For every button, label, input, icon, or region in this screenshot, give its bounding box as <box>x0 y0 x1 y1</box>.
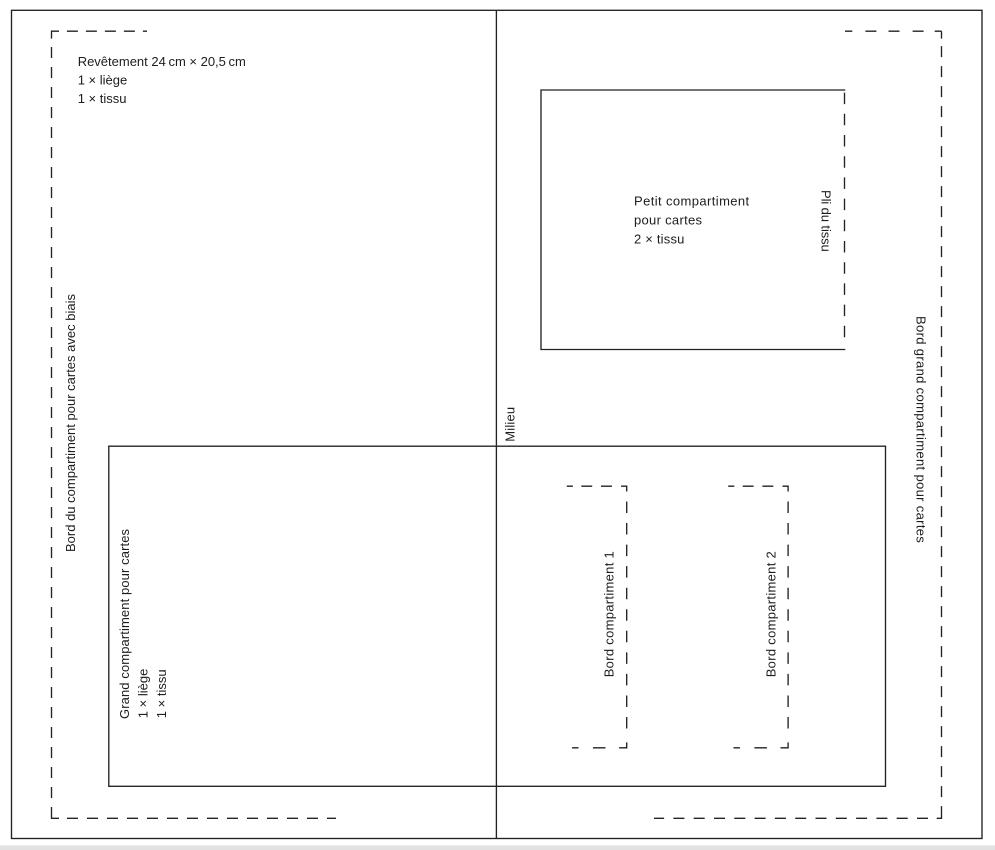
svg-text:1 × tissu: 1 × tissu <box>78 91 127 106</box>
svg-text:Bord grand compartiment pour c: Bord grand compartiment pour cartes <box>914 316 929 543</box>
svg-text:1 × tissu: 1 × tissu <box>154 669 169 718</box>
svg-text:1 × liège: 1 × liège <box>78 73 128 88</box>
svg-text:pour cartes: pour cartes <box>634 212 703 227</box>
svg-text:Milieu: Milieu <box>503 407 518 442</box>
svg-text:2 × tissu: 2 × tissu <box>634 231 685 246</box>
svg-text:Petit compartiment: Petit compartiment <box>634 193 750 208</box>
svg-text:Bord compartiment 1: Bord compartiment 1 <box>601 551 616 677</box>
svg-text:Grand compartiment pour cartes: Grand compartiment pour cartes <box>117 528 132 719</box>
svg-text:Revêtement 24 cm × 20,5 cm: Revêtement 24 cm × 20,5 cm <box>78 54 246 69</box>
svg-text:Pli du tissu: Pli du tissu <box>818 190 833 252</box>
svg-text:Bord compartiment 2: Bord compartiment 2 <box>763 551 778 677</box>
svg-text:Bord du compartiment pour cart: Bord du compartiment pour cartes avec bi… <box>63 294 78 552</box>
svg-text:1 × liège: 1 × liège <box>135 669 150 719</box>
